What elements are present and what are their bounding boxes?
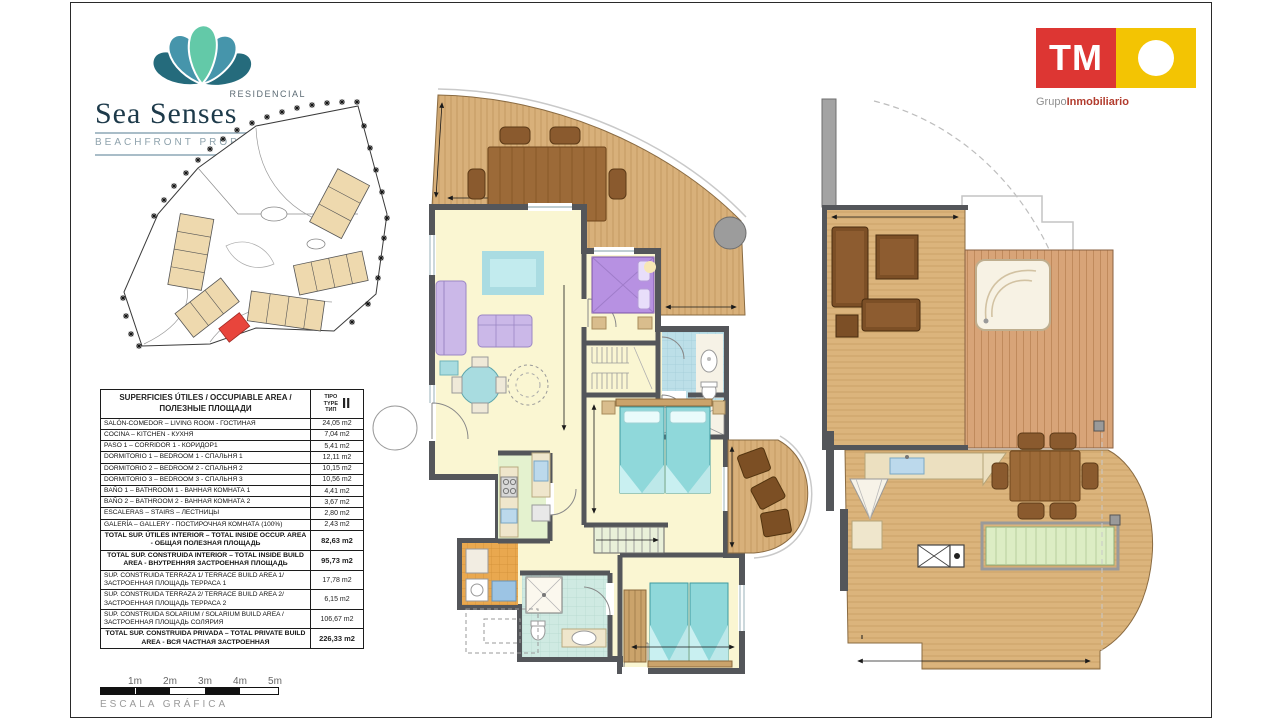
scale-label-5m: 5m	[260, 676, 290, 687]
table-row-total-private: TOTAL SUP. CONSTRUIDA PRIVADA – TOTAL PR…	[101, 629, 364, 649]
post	[1110, 515, 1120, 525]
table-row: SALÓN-COMEDOR – LIVING ROOM - ГОСТИНАЯ24…	[101, 418, 364, 429]
skylight-strip	[982, 523, 1118, 569]
areas-table-title: SUPERFICIES ÚTILES / OCCUPIABLE AREA / П…	[101, 390, 311, 419]
table-row-total-useful: TOTAL SUP. ÚTILES INTERIOR – TOTAL INSID…	[101, 530, 364, 550]
table-row: SUP. CONSTRUIDA TERRAZA 2/ TERRACE BUILD…	[101, 590, 364, 609]
type-word-ru: ТИП	[324, 407, 338, 414]
tm-sun-icon	[1138, 40, 1174, 76]
fridge	[532, 505, 550, 521]
washbasin	[572, 631, 596, 645]
sofa-vertical	[436, 281, 466, 355]
chimney-wall	[822, 99, 836, 207]
lounge-cushion	[760, 509, 792, 537]
upper-deck	[822, 205, 968, 450]
bar-sink	[890, 458, 924, 474]
table-row: BAÑO 1 – BATHROOM 1 - ВАННАЯ КОМНАТА 14,…	[101, 486, 364, 497]
side-table	[836, 315, 858, 337]
tm-red-box: TM	[1036, 28, 1116, 88]
type-word-en: TYPE	[324, 401, 338, 408]
tm-initials: TM	[1049, 37, 1103, 79]
lower-deck	[822, 421, 1153, 695]
stair-hatch-box	[918, 545, 964, 567]
headboard	[616, 399, 712, 406]
washing-machine	[492, 581, 516, 601]
scale-label-2m: 2m	[155, 676, 185, 687]
table-row: BAÑO 2 – BATHROOM 2 - ВАННАЯ КОМНАТА 23,…	[101, 497, 364, 508]
tm-grupo-logo: TM GrupoInmobiliario	[1036, 28, 1206, 108]
tm-inmobiliario-label: Inmobiliario	[1067, 96, 1129, 108]
tm-grupo-label: Grupo	[1036, 96, 1067, 108]
kitchen-sink	[501, 509, 517, 523]
structural-column	[714, 217, 746, 249]
post	[1094, 421, 1104, 431]
sofa-horizontal	[478, 315, 532, 347]
tm-yellow-box	[1116, 28, 1196, 88]
main-floor-plan	[363, 85, 813, 695]
table-row: ESCALERAS – STAIRS – ЛЕСТНИЦЫ2,80 m2	[101, 508, 364, 519]
table-row: DORMITORIO 2 – BEDROOM 2 - СПАЛЬНЯ 210,1…	[101, 463, 364, 474]
table-row: DORMITORIO 3 – BEDROOM 3 - СПАЛЬНЯ 310,5…	[101, 474, 364, 485]
table-row: PASO 1 – CORRIDOR 1 - КОРИДОР15,41 m2	[101, 441, 364, 452]
stairs	[594, 527, 664, 553]
sea-senses-fan-icon	[95, 16, 310, 86]
brochure-page: RESIDENCIAL Sea Senses BEACHFRONT PROPER…	[0, 0, 1280, 720]
table-row-total-built: TOTAL SUP. CONSTRUIDA INTERIOR – TOTAL I…	[101, 550, 364, 570]
type-word-es: TIPO	[324, 394, 338, 401]
table-row: SUP. CONSTRUIDA TERRAZA 1/ TERRACE BUILD…	[101, 570, 364, 589]
scale-label-4m: 4m	[225, 676, 255, 687]
scale-label-1m: 1m	[120, 676, 150, 687]
pool-small	[307, 239, 325, 249]
scale-caption: ESCALA GRÁFICA	[100, 699, 320, 710]
solarium-plan	[810, 95, 1210, 695]
unit-type-cell: TIPO TYPE ТИП II	[311, 390, 364, 419]
unit-type-value: II	[342, 395, 350, 412]
graphic-scale: 1m 2m 3m 4m 5m ESCALA GRÁFICA	[100, 676, 320, 710]
areas-table: SUPERFICIES ÚTILES / OCCUPIABLE AREA / П…	[100, 389, 364, 649]
entry-column-circle	[373, 406, 417, 450]
scale-bar	[100, 687, 279, 695]
jacuzzi-platform	[965, 250, 1113, 448]
table-row: DORMITORIO 1 – BEDROOM 1 - СПАЛЬНЯ 112,1…	[101, 452, 364, 463]
breakfast-table	[460, 365, 500, 405]
table-row: GALERÍA – GALLERY - ПОСТИРОЧНАЯ КОМНАТА …	[101, 519, 364, 530]
lamp-glow	[644, 261, 656, 273]
side-table	[440, 361, 458, 375]
site-plan	[106, 96, 396, 390]
terrace-2	[728, 436, 812, 558]
pool	[261, 207, 287, 221]
scale-label-3m: 3m	[190, 676, 220, 687]
bedroom-3	[624, 583, 734, 667]
table-row: COCINA – KITCHEN - КУХНЯ7,04 m2	[101, 429, 364, 440]
table-row: SUP. CONSTRUIDA SOLARIUM / SOLARIUM BUIL…	[101, 609, 364, 628]
